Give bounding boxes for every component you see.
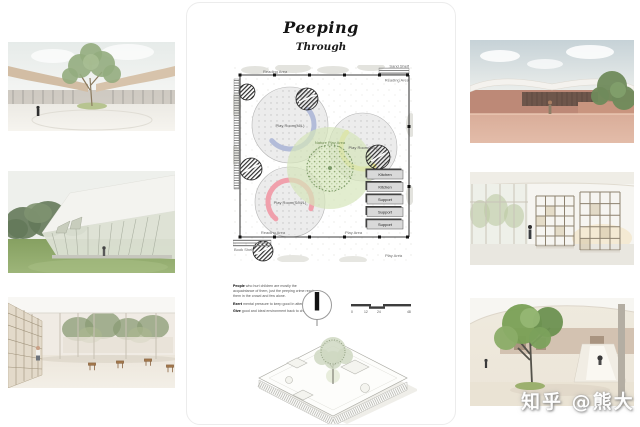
child-figure xyxy=(36,346,40,361)
render-greenhouse-art xyxy=(8,171,175,273)
label-sand-shelf: Sand Shelf xyxy=(389,65,409,69)
legend-box: Support xyxy=(366,219,404,230)
legend-box: Support xyxy=(366,206,404,217)
label-room-1: Play Room(M/L) xyxy=(276,123,306,128)
label-reading-topright: Reading Area xyxy=(385,78,410,83)
svg-text:24: 24 xyxy=(377,310,381,314)
svg-text:48: 48 xyxy=(407,310,411,314)
glazing-left xyxy=(470,184,528,246)
render-pavilion-stools xyxy=(8,297,175,388)
north-arrow-icon xyxy=(299,286,335,328)
scale-bar: 0 12 24 48 xyxy=(350,302,414,316)
watermark: 知乎 @熊大 xyxy=(521,387,635,414)
legend-box: Kitchen xyxy=(366,169,404,180)
svg-text:Support: Support xyxy=(378,197,393,202)
svg-text:Support: Support xyxy=(378,210,393,215)
foreground-wall xyxy=(470,114,634,143)
legend-box: Support xyxy=(366,194,404,205)
render-pink-building xyxy=(470,40,634,143)
svg-text:Support: Support xyxy=(378,222,393,227)
render-pavilion-art xyxy=(8,297,175,388)
axonometric-diagram xyxy=(237,332,417,424)
page: Peeping Through xyxy=(0,0,640,427)
presentation-board: Peeping Through xyxy=(186,2,456,425)
legend-box: Kitchen xyxy=(366,181,404,192)
render-courtyard-tree xyxy=(8,42,175,131)
label-room-3: Play Room(S/M/L) xyxy=(274,200,307,205)
board-subtitle: Through xyxy=(187,41,455,53)
label-play-area-2: Play Area xyxy=(385,253,403,258)
render-greenhouse-lawn xyxy=(8,171,175,273)
render-grid-interior-art xyxy=(470,172,634,265)
svg-text:Kitchen: Kitchen xyxy=(378,185,391,190)
site-plan: Kitchen Kitchen Support Support Support … xyxy=(233,65,413,262)
label-reading-top: Reading Area xyxy=(263,69,288,74)
svg-text:12: 12 xyxy=(364,310,368,314)
label-room-2: Play Room(M/L) xyxy=(349,145,379,150)
label-book-shelf: Book Shelf xyxy=(234,247,254,252)
roof-plane xyxy=(8,297,175,313)
person-figure xyxy=(36,106,39,116)
column xyxy=(618,304,625,400)
svg-text:0: 0 xyxy=(351,310,353,314)
label-nature: Nature Play Area xyxy=(315,140,346,145)
render-pink-building-art xyxy=(470,40,634,143)
board-title: Peeping xyxy=(187,18,455,37)
label-play-area-1: Play Area xyxy=(345,230,363,235)
render-courtyard-tree-art xyxy=(8,42,175,131)
plan-legend: Kitchen Kitchen Support Support Support xyxy=(366,169,404,230)
child-figure xyxy=(102,246,105,256)
label-reading-bottom: Reading Area xyxy=(261,230,286,235)
render-grid-interior xyxy=(470,172,634,265)
svg-text:Kitchen: Kitchen xyxy=(378,172,391,177)
